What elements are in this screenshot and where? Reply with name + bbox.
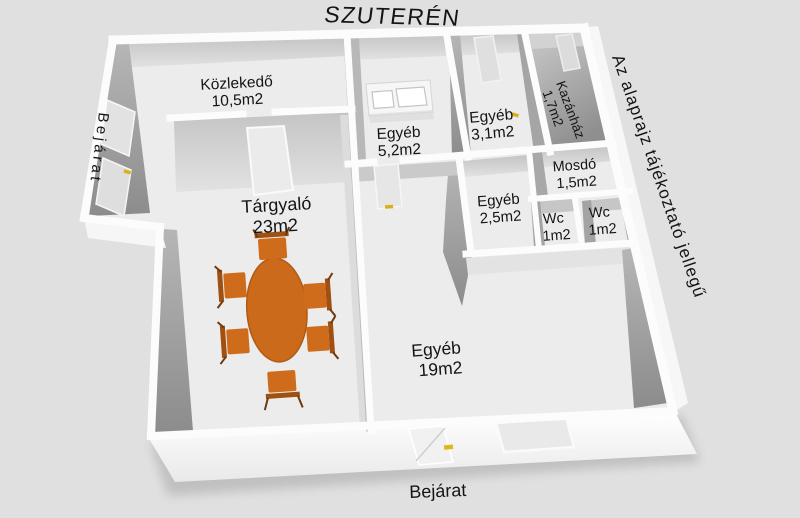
room-label-mosdo: Mosdó 1,5m2 xyxy=(552,157,598,193)
room-name: Wc xyxy=(588,204,610,221)
sink-basin xyxy=(372,91,394,109)
entrance-label-bottom: Bejárat xyxy=(409,480,467,502)
chair-seat xyxy=(258,237,287,260)
room-area: 5,2m2 xyxy=(377,141,421,160)
room-area: 1,5m2 xyxy=(556,174,597,193)
room-label-egyeb52: Egyéb 5,2m2 xyxy=(376,124,422,160)
chair-seat xyxy=(226,328,250,354)
chair-seat xyxy=(267,370,296,393)
door-handle-icon xyxy=(444,444,453,449)
room-area: 2,5m2 xyxy=(479,207,522,227)
floor-plan-canvas: SZUTERÉN Közlekedő 10,5m2 Egyéb 5,2m2 Eg… xyxy=(0,0,800,518)
chair-seat xyxy=(303,283,327,309)
bottom-wall-window xyxy=(496,418,574,452)
egyeb19-door-leaf xyxy=(374,164,402,209)
targyalo-door-leaf xyxy=(247,126,293,195)
sink-unit xyxy=(366,80,434,123)
room-name: Wc xyxy=(542,210,564,227)
wall-targyalo-north-b xyxy=(275,109,352,112)
room-name: Tárgyaló xyxy=(241,193,312,217)
page-title: SZUTERÉN xyxy=(323,1,462,30)
wall-targyalo-north-a xyxy=(170,114,243,118)
room-area: 19m2 xyxy=(418,357,463,380)
room-area: 23m2 xyxy=(252,215,298,237)
chair-seat xyxy=(306,325,330,351)
chair-seat xyxy=(223,272,247,298)
door-handle-icon xyxy=(385,205,393,209)
room-label-egyeb31: Egyéb 3,1m2 xyxy=(469,106,516,144)
room-area: 1m2 xyxy=(588,221,617,239)
room-area: 10,5m2 xyxy=(211,91,264,111)
room-label-egyeb19: Egyéb 19m2 xyxy=(411,337,463,380)
sink-basin xyxy=(396,87,427,107)
room-name: Mosdó xyxy=(552,157,597,176)
wall-egyeb52-south-a xyxy=(348,162,374,164)
room-label-egyeb25: Egyéb 2,5m2 xyxy=(477,191,522,228)
room-area: 1m2 xyxy=(542,227,571,245)
